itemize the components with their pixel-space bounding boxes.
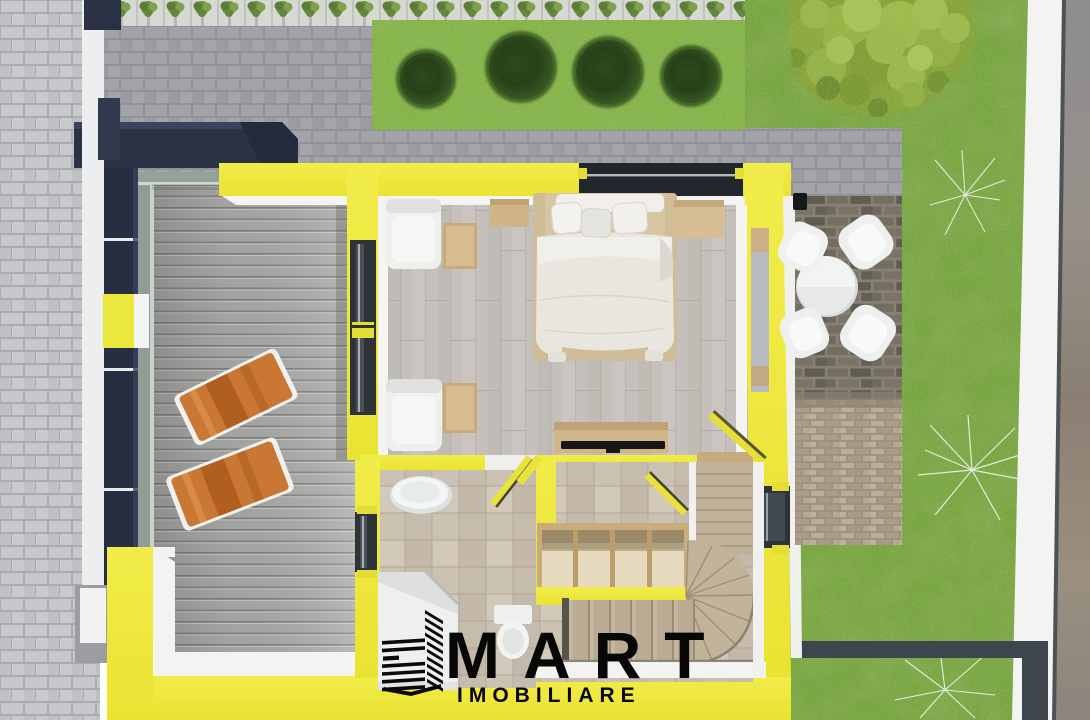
svg-text:IMOBILIARE: IMOBILIARE	[457, 684, 641, 707]
svg-text:MART: MART	[445, 618, 728, 692]
